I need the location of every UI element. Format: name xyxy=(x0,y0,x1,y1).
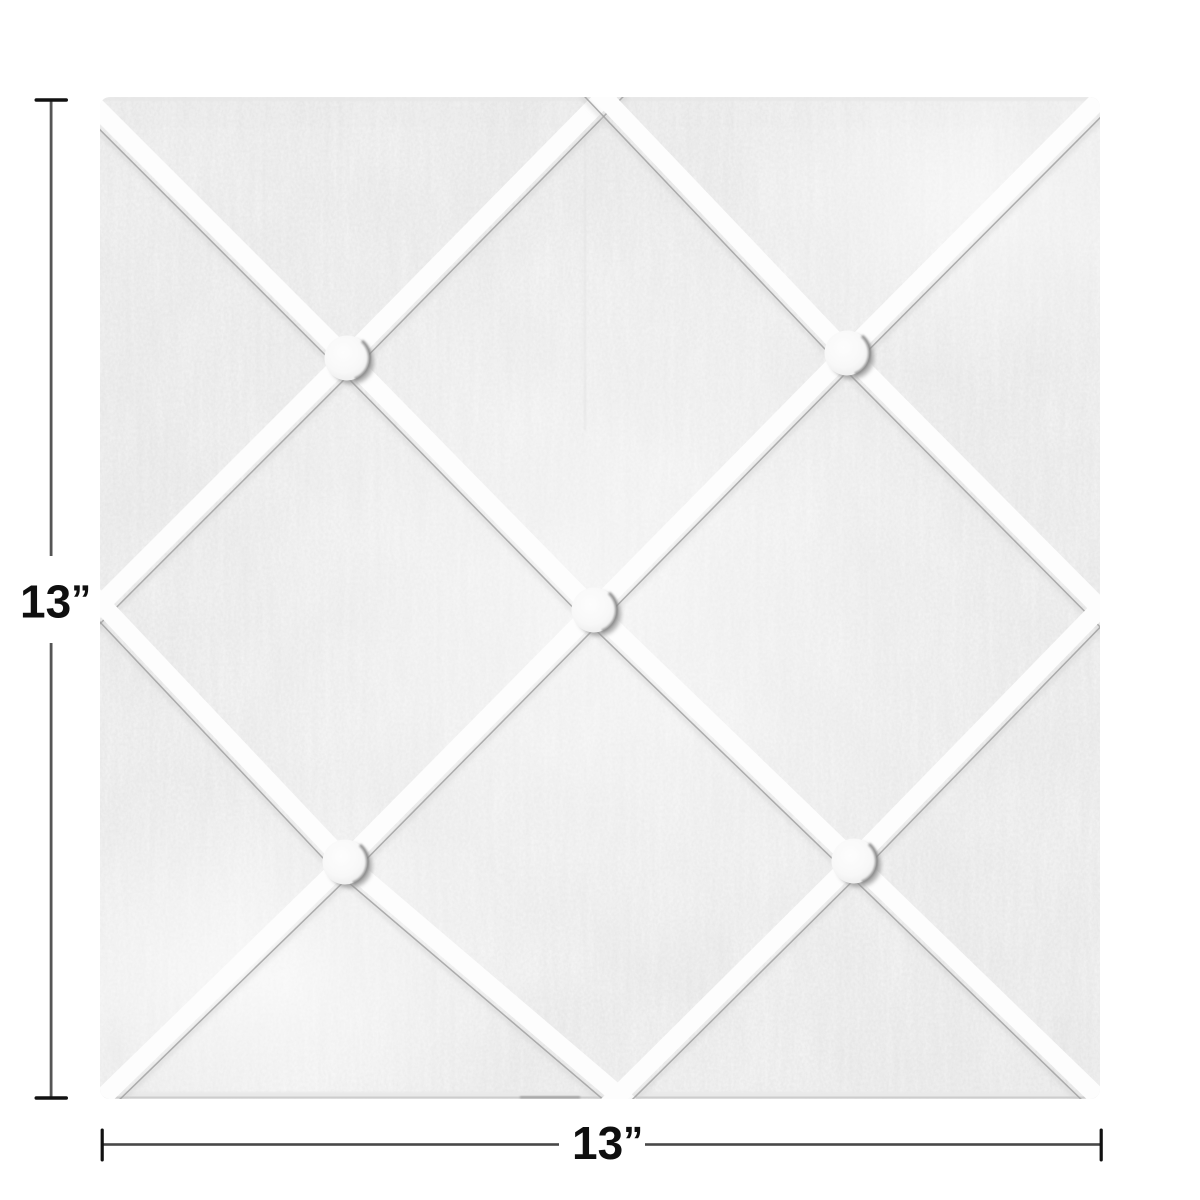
svg-text:13”: 13” xyxy=(20,576,91,628)
svg-text:13”: 13” xyxy=(572,1117,643,1169)
